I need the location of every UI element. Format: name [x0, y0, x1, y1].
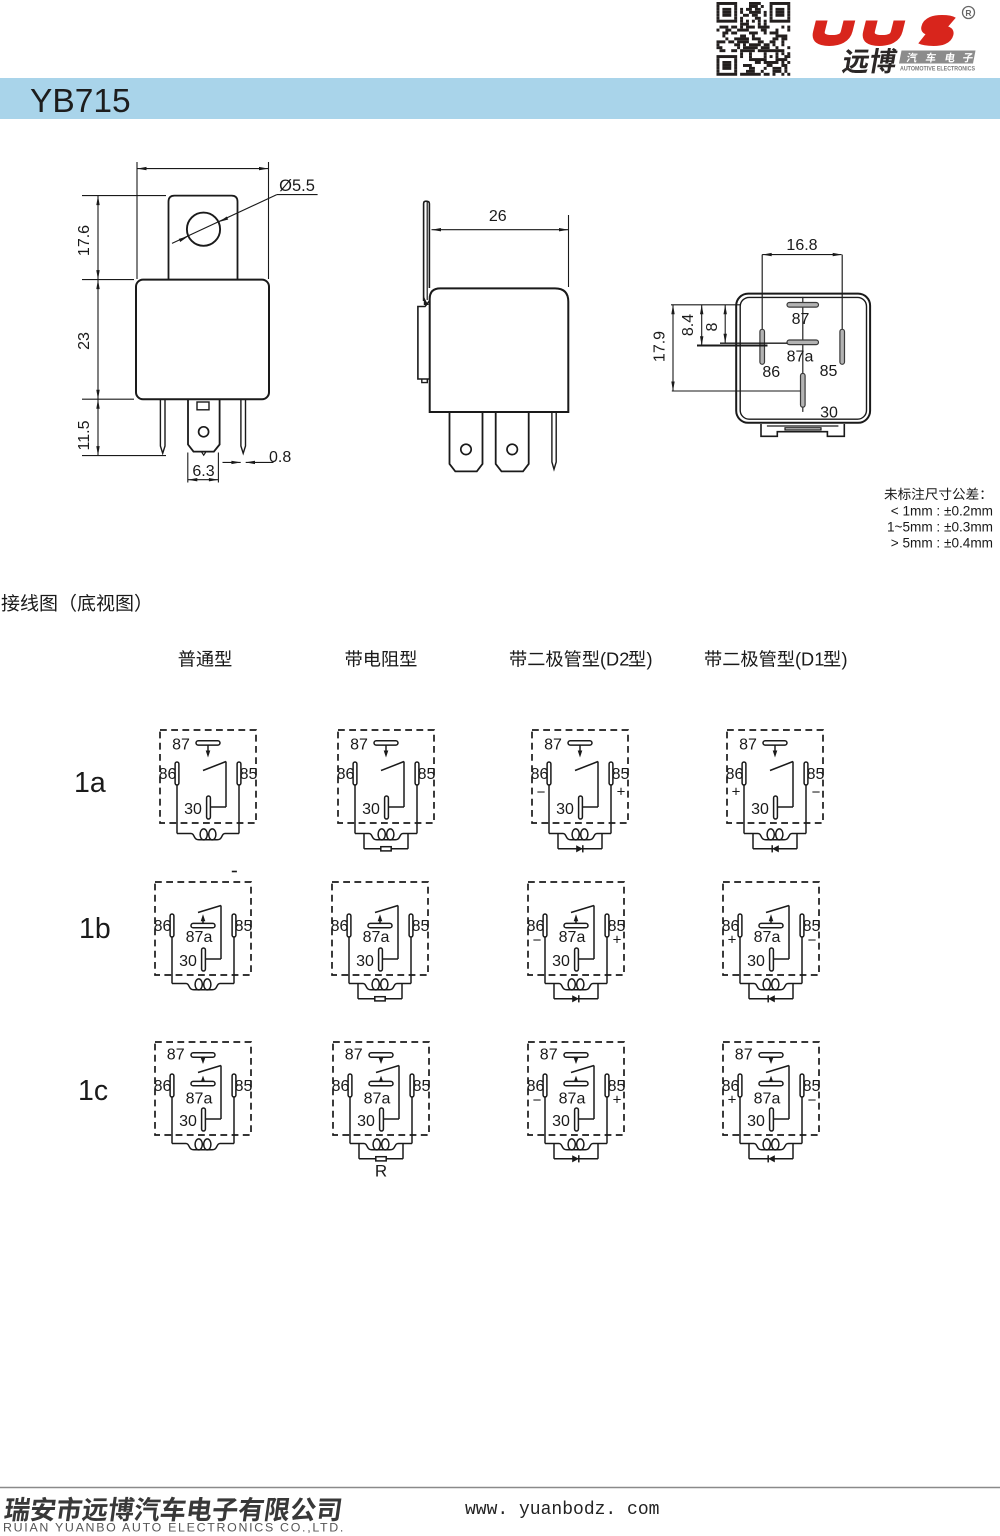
svg-text:86: 86	[332, 1078, 350, 1095]
svg-text:87a: 87a	[754, 1091, 781, 1108]
svg-text:−: −	[533, 932, 542, 949]
svg-text:30: 30	[362, 801, 380, 818]
svg-text:85: 85	[612, 766, 630, 783]
svg-text:+: +	[613, 932, 622, 949]
svg-text:87a: 87a	[559, 929, 586, 946]
svg-text:YB715: YB715	[30, 83, 131, 120]
svg-text:−: −	[812, 784, 821, 801]
svg-text:85: 85	[235, 1078, 253, 1095]
svg-text:87: 87	[792, 311, 810, 328]
svg-text:1c: 1c	[78, 1075, 108, 1107]
svg-text:+: +	[728, 1092, 737, 1109]
svg-text:30: 30	[751, 801, 769, 818]
svg-text:1b: 1b	[79, 913, 111, 945]
svg-text:−: −	[808, 1092, 817, 1109]
svg-text:−: −	[808, 932, 817, 949]
svg-text:+: +	[613, 1092, 622, 1109]
svg-text:86: 86	[337, 766, 355, 783]
svg-text:87a: 87a	[186, 1091, 213, 1108]
svg-text:< 1mm : ±0.2mm: < 1mm : ±0.2mm	[891, 504, 993, 519]
svg-text:30: 30	[556, 801, 574, 818]
svg-text:30: 30	[184, 801, 202, 818]
svg-text:87a: 87a	[787, 349, 814, 366]
svg-text:17.6: 17.6	[76, 225, 93, 256]
svg-text:86: 86	[154, 918, 172, 935]
svg-text:R: R	[965, 8, 971, 18]
svg-text:85: 85	[240, 766, 258, 783]
svg-text:87: 87	[172, 737, 190, 754]
svg-text:): )	[647, 650, 653, 670]
svg-text:30: 30	[357, 1113, 375, 1130]
svg-text:87a: 87a	[186, 929, 213, 946]
svg-text:85: 85	[412, 918, 430, 935]
svg-text:8.4: 8.4	[680, 314, 697, 336]
svg-text:0.8: 0.8	[269, 449, 291, 466]
svg-text:86: 86	[726, 766, 744, 783]
svg-text:AUTOMOTIVE ELECTRONICS: AUTOMOTIVE ELECTRONICS	[900, 66, 976, 73]
svg-text:11.5: 11.5	[76, 420, 93, 450]
svg-text:30: 30	[747, 1113, 765, 1130]
svg-text:87: 87	[350, 737, 368, 754]
svg-text:+: +	[617, 784, 626, 801]
svg-text:30: 30	[179, 1113, 197, 1130]
svg-text:16.8: 16.8	[786, 237, 817, 254]
svg-text:6.3: 6.3	[192, 463, 214, 480]
svg-text:30: 30	[356, 953, 374, 970]
svg-text:30: 30	[820, 405, 838, 422]
svg-text:85: 85	[418, 766, 436, 783]
svg-text:(D2: (D2	[600, 650, 629, 670]
svg-text:87a: 87a	[754, 929, 781, 946]
svg-text:+: +	[732, 784, 741, 801]
svg-text:87a: 87a	[559, 1091, 586, 1108]
svg-text:8: 8	[704, 322, 721, 331]
svg-text:87: 87	[544, 737, 562, 754]
svg-text:> 5mm : ±0.4mm: > 5mm : ±0.4mm	[891, 536, 993, 551]
svg-text:1~5mm : ±0.3mm: 1~5mm : ±0.3mm	[887, 520, 993, 535]
svg-text:87a: 87a	[364, 1091, 391, 1108]
svg-text:30: 30	[179, 953, 197, 970]
svg-text:86: 86	[159, 766, 177, 783]
svg-text:85: 85	[820, 363, 838, 380]
svg-text:85: 85	[235, 918, 253, 935]
svg-text:30: 30	[747, 953, 765, 970]
svg-text:RUIAN YUANBO AUTO ELECTRONICS: RUIAN YUANBO AUTO ELECTRONICS CO.,LTD.	[3, 1521, 345, 1535]
svg-text:86: 86	[531, 766, 549, 783]
svg-text:23: 23	[76, 332, 93, 350]
svg-text:87a: 87a	[363, 929, 390, 946]
svg-text:−: −	[533, 1092, 542, 1109]
svg-text:87: 87	[540, 1047, 558, 1064]
svg-text:www. yuanbodz. com: www. yuanbodz. com	[465, 1500, 659, 1520]
svg-text:87: 87	[739, 737, 757, 754]
svg-text:85: 85	[807, 766, 825, 783]
svg-text:30: 30	[552, 1113, 570, 1130]
svg-text:(D1: (D1	[795, 650, 824, 670]
svg-text:17.9: 17.9	[652, 331, 669, 362]
svg-text:87: 87	[167, 1047, 185, 1064]
svg-text:87: 87	[735, 1047, 753, 1064]
svg-text:26: 26	[489, 208, 507, 225]
svg-text:): )	[842, 650, 848, 670]
svg-text:Ø5.5: Ø5.5	[279, 177, 315, 195]
svg-text:+: +	[728, 932, 737, 949]
svg-text:R: R	[375, 1162, 387, 1181]
svg-text:−: −	[537, 784, 546, 801]
svg-text:86: 86	[331, 918, 349, 935]
svg-text:1a: 1a	[74, 767, 106, 799]
svg-text:30: 30	[552, 953, 570, 970]
svg-text:87: 87	[345, 1047, 363, 1064]
svg-text:85: 85	[413, 1078, 431, 1095]
svg-text:86: 86	[762, 364, 780, 381]
svg-text:86: 86	[154, 1078, 172, 1095]
